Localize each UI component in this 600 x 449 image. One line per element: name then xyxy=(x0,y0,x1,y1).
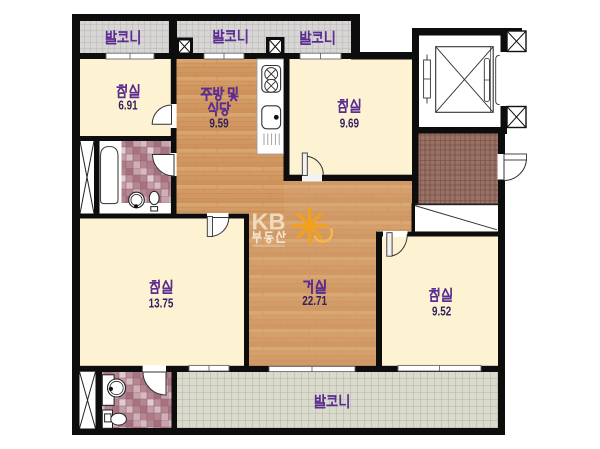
svg-text:9.52: 9.52 xyxy=(432,306,451,320)
svg-text:6.91: 6.91 xyxy=(118,99,138,113)
svg-text:9.59: 9.59 xyxy=(209,118,228,132)
svg-text:KB: KB xyxy=(252,209,286,235)
svg-text:13.75: 13.75 xyxy=(149,298,174,312)
svg-text:22.71: 22.71 xyxy=(302,295,327,309)
svg-text:9.69: 9.69 xyxy=(340,117,359,131)
